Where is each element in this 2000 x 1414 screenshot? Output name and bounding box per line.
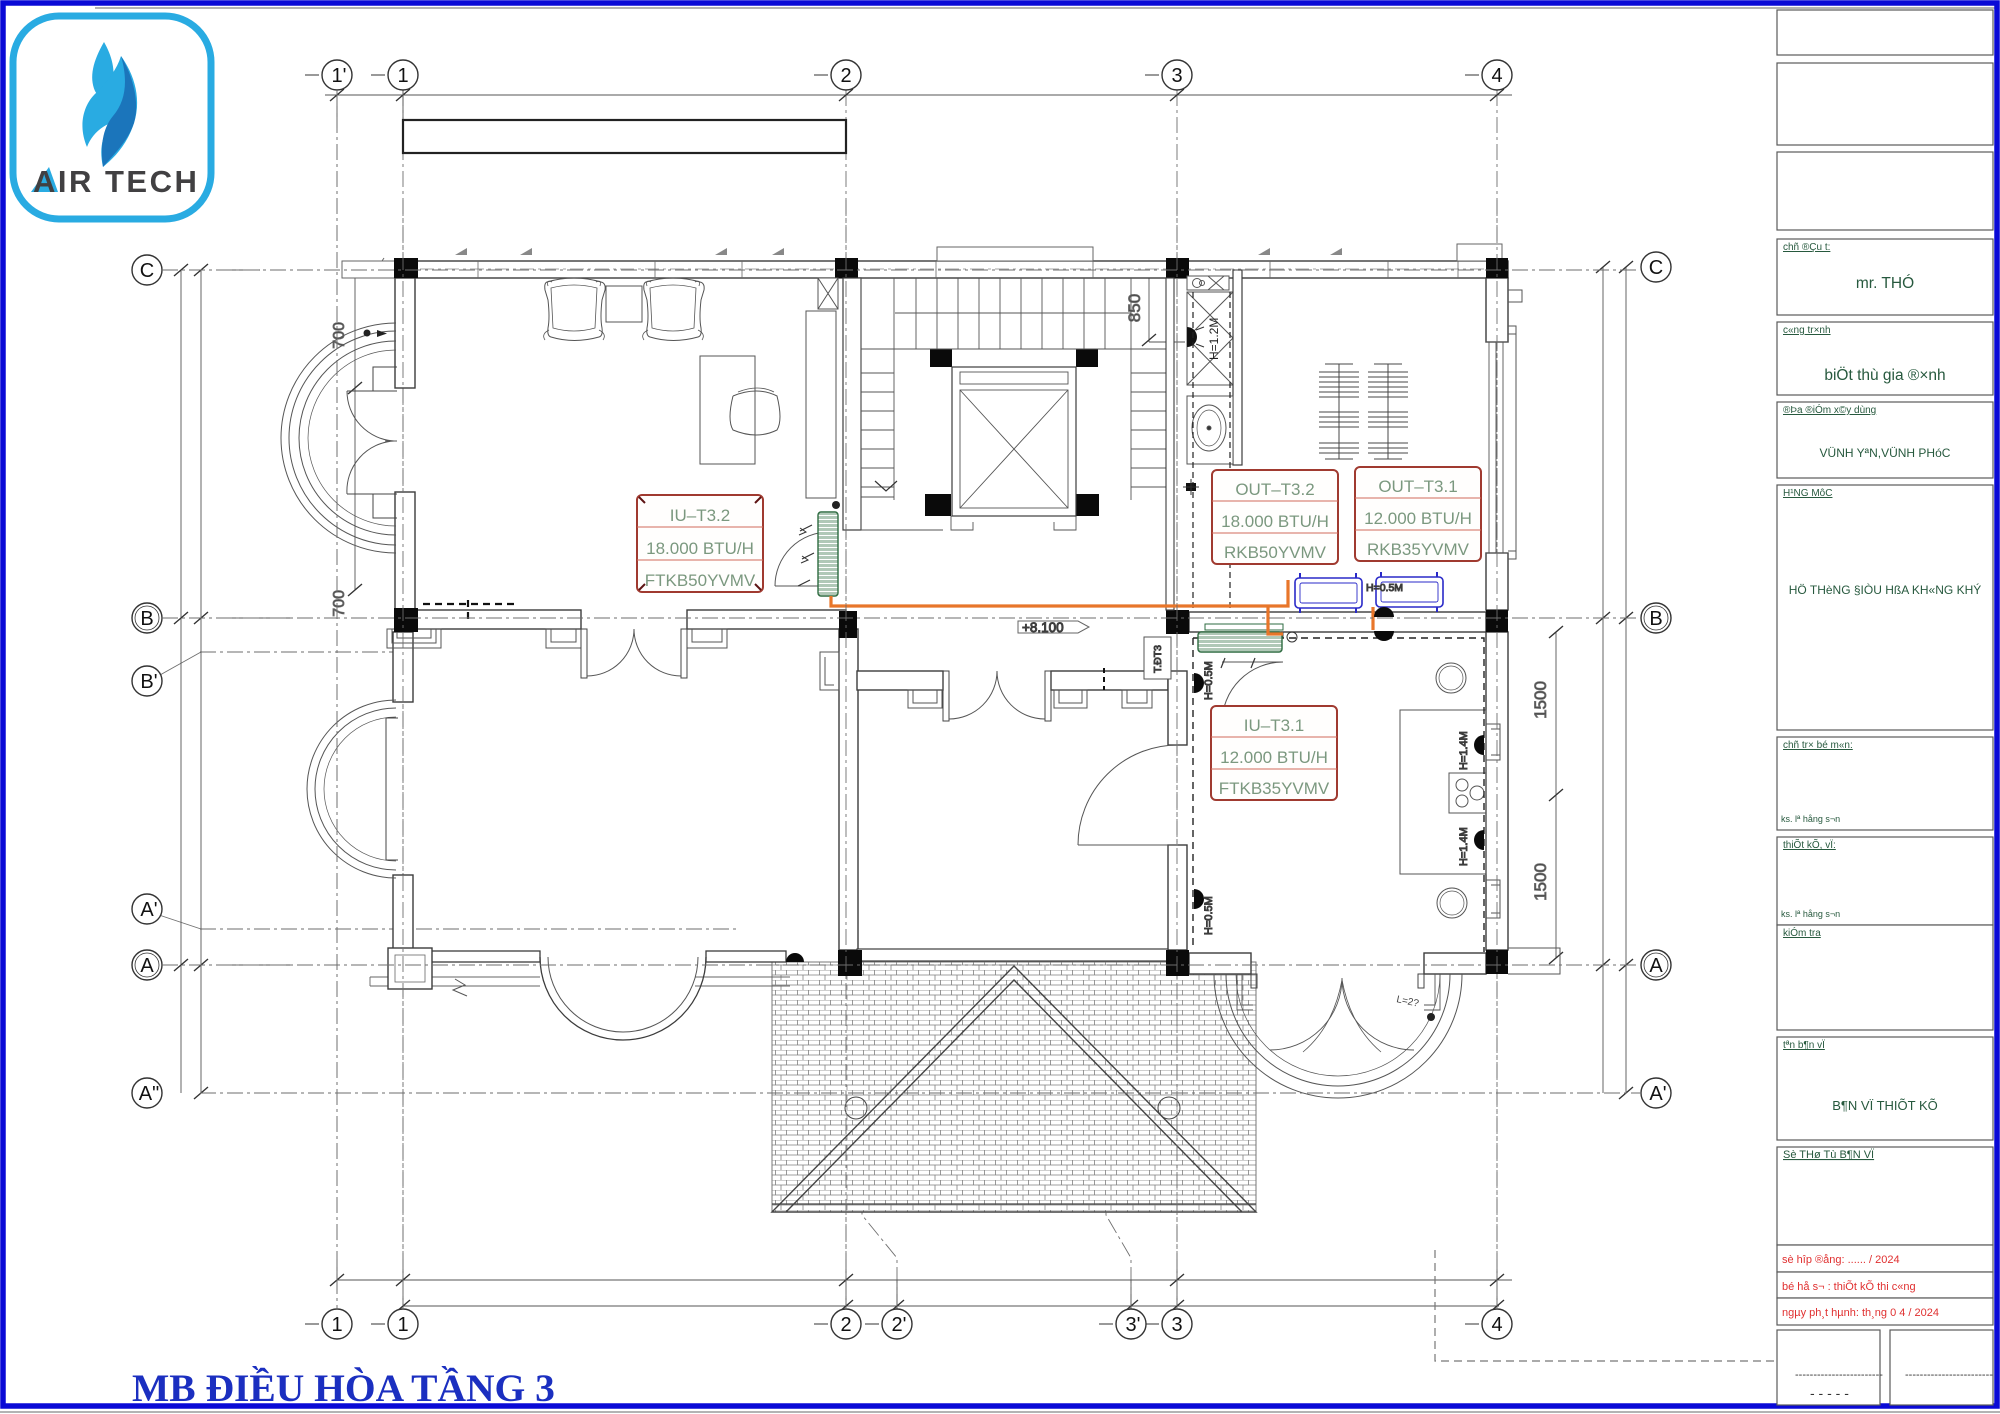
svg-text:------------------------: ------------------------ <box>1905 1369 1993 1381</box>
svg-text:12.000 BTU/H: 12.000 BTU/H <box>1220 748 1328 767</box>
svg-text:H¹NG MôC: H¹NG MôC <box>1783 488 1832 499</box>
svg-text:+8.100: +8.100 <box>1022 620 1064 635</box>
svg-text:HÖ THèNG §IÒU HßA KH«NG KHÝ: HÖ THèNG §IÒU HßA KH«NG KHÝ <box>1789 582 1982 597</box>
svg-text:tªn b¶n vÏ: tªn b¶n vÏ <box>1783 1039 1825 1051</box>
svg-text:850: 850 <box>1125 294 1144 322</box>
svg-text:2: 2 <box>840 65 851 87</box>
svg-text:c«ng tr×nh: c«ng tr×nh <box>1783 325 1831 336</box>
svg-text:H=0.5M: H=0.5M <box>1203 661 1215 700</box>
svg-text:C: C <box>1649 257 1663 279</box>
svg-text:- - - - -: - - - - - <box>1810 1385 1849 1401</box>
svg-text:H=1.2M: H=1.2M <box>1207 318 1221 360</box>
svg-text:2: 2 <box>840 1314 851 1336</box>
svg-text:B: B <box>1649 608 1662 630</box>
svg-text:12.000 BTU/H: 12.000 BTU/H <box>1364 509 1472 528</box>
svg-text:ngµy ph¸t hµnh: th¸ng 0 4 / 20: ngµy ph¸t hµnh: th¸ng 0 4 / 2024 <box>1782 1307 1939 1319</box>
svg-text:700: 700 <box>331 590 348 617</box>
svg-text:B': B' <box>140 671 157 693</box>
svg-text:T.ĐT3: T.ĐT3 <box>1152 645 1164 673</box>
svg-text:3: 3 <box>1171 65 1182 87</box>
svg-text:IU–T3.2: IU–T3.2 <box>670 506 730 525</box>
svg-text:4: 4 <box>1491 1314 1502 1336</box>
svg-text:1: 1 <box>397 65 408 87</box>
svg-text:FTKB50YVMV: FTKB50YVMV <box>645 571 756 590</box>
svg-text:3': 3' <box>1126 1314 1141 1336</box>
svg-text:ks. lª hång s¬n: ks. lª hång s¬n <box>1781 814 1840 824</box>
svg-text:thiÕt kÕ, vÏ:: thiÕt kÕ, vÏ: <box>1783 838 1836 851</box>
svg-text:4: 4 <box>1491 65 1502 87</box>
svg-text:700: 700 <box>331 322 348 349</box>
svg-text:A': A' <box>140 899 157 921</box>
svg-text:A: A <box>140 955 154 977</box>
svg-text:Sè THø Tù B¶N VÏ: Sè THø Tù B¶N VÏ <box>1783 1149 1875 1161</box>
svg-text:H=1.4M: H=1.4M <box>1458 827 1470 866</box>
svg-text:3: 3 <box>1171 1314 1182 1336</box>
svg-text:VÜNH YªN,VÜNH PHóC: VÜNH YªN,VÜNH PHóC <box>1820 446 1951 460</box>
svg-text:1500: 1500 <box>1531 863 1550 901</box>
svg-text:B: B <box>140 608 153 630</box>
svg-text:OUT–T3.1: OUT–T3.1 <box>1378 477 1457 496</box>
svg-text:sè hîp ®ång: ...... / 2024: sè hîp ®ång: ...... / 2024 <box>1782 1254 1900 1266</box>
svg-text:------------------------: ------------------------ <box>1795 1369 1883 1381</box>
svg-text:H=0.5M: H=0.5M <box>1366 582 1403 594</box>
svg-text:A": A" <box>139 1083 159 1105</box>
svg-text:mr. THÓ: mr. THÓ <box>1856 275 1914 292</box>
svg-text:18.000 BTU/H: 18.000 BTU/H <box>1221 512 1329 531</box>
svg-text:OUT–T3.2: OUT–T3.2 <box>1235 480 1314 499</box>
svg-text:AIR TECH: AIR TECH <box>33 164 199 199</box>
svg-text:MB ĐIỀU HÒA TẦNG 3: MB ĐIỀU HÒA TẦNG 3 <box>132 1365 555 1410</box>
svg-text:1: 1 <box>331 1314 342 1336</box>
svg-text:biÖt thù gia ®×nh: biÖt thù gia ®×nh <box>1824 366 1945 384</box>
svg-text:1500: 1500 <box>1531 681 1550 719</box>
svg-text:C: C <box>140 260 154 282</box>
svg-text:chñ ®Çu t:: chñ ®Çu t: <box>1783 242 1830 253</box>
svg-text:chñ tr× bé m«n:: chñ tr× bé m«n: <box>1783 740 1853 751</box>
svg-text:ks. lª hång s¬n: ks. lª hång s¬n <box>1781 909 1840 919</box>
svg-text:RKB50YVMV: RKB50YVMV <box>1224 543 1327 562</box>
svg-text:bé hå s¬ : thiÕt kÕ thi c«ng: bé hå s¬ : thiÕt kÕ thi c«ng <box>1782 1280 1916 1293</box>
svg-text:®Þa ®iÓm x©y dùng: ®Þa ®iÓm x©y dùng <box>1783 403 1876 416</box>
svg-text:H=0.5M: H=0.5M <box>1203 896 1215 935</box>
svg-text:18.000 BTU/H: 18.000 BTU/H <box>646 539 754 558</box>
svg-text:1: 1 <box>397 1314 408 1336</box>
svg-text:A: A <box>1649 955 1663 977</box>
svg-text:RKB35YVMV: RKB35YVMV <box>1367 540 1470 559</box>
svg-text:A': A' <box>1649 1083 1666 1105</box>
svg-text:2': 2' <box>892 1314 907 1336</box>
svg-text:FTKB35YVMV: FTKB35YVMV <box>1219 779 1330 798</box>
svg-text:H=1.4M: H=1.4M <box>1458 731 1470 770</box>
svg-text:1': 1' <box>332 65 347 87</box>
svg-text:B¶N VÏ THIÕT KÕ: B¶N VÏ THIÕT KÕ <box>1832 1098 1937 1113</box>
svg-text:kiÓm tra: kiÓm tra <box>1783 926 1821 939</box>
svg-text:IU–T3.1: IU–T3.1 <box>1244 716 1304 735</box>
